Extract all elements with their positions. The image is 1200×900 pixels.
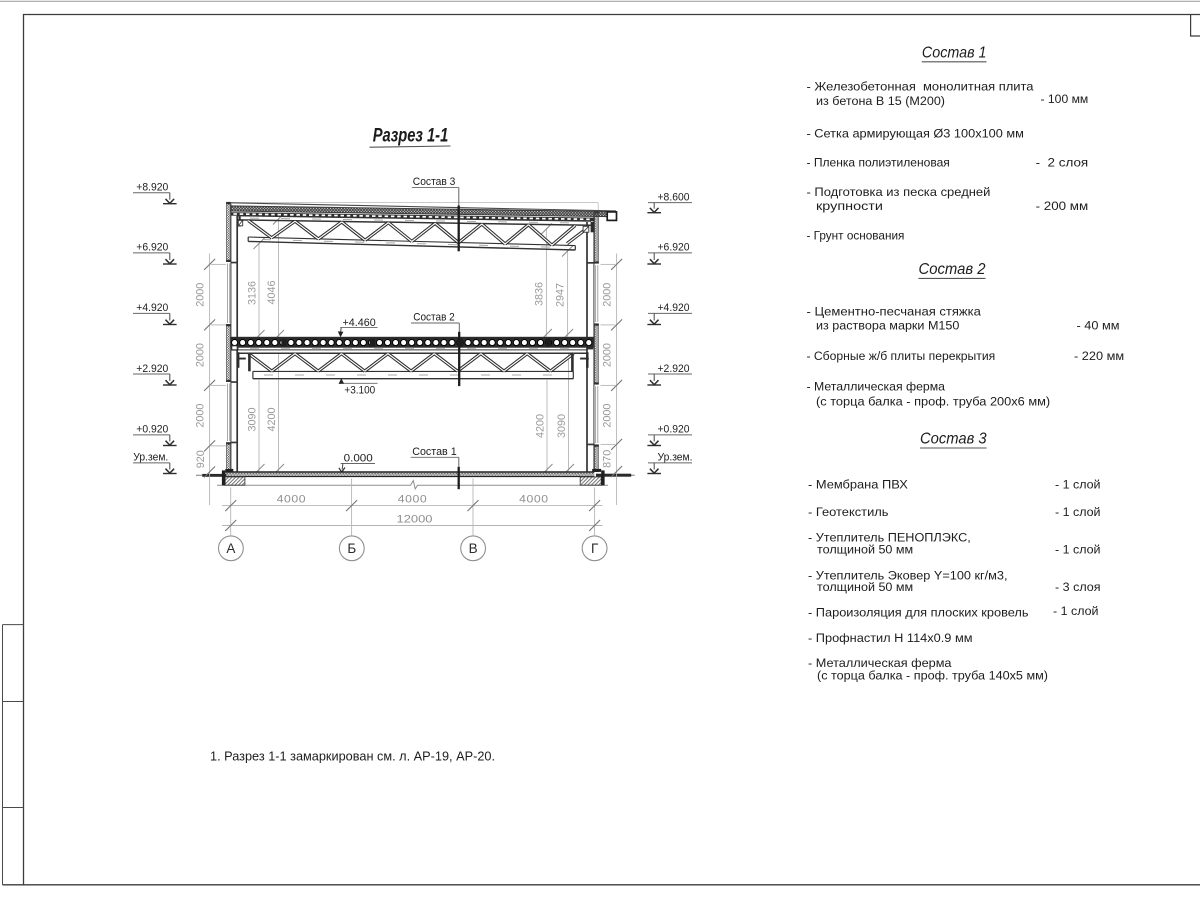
svg-text:2000: 2000 xyxy=(195,404,207,428)
svg-text:(с торца балка - проф. труба 1: (с торца балка - проф. труба 140х5 мм) xyxy=(817,668,1048,682)
svg-text:Состав 3: Состав 3 xyxy=(920,431,987,448)
svg-text:2000: 2000 xyxy=(195,283,207,307)
svg-text:+8.600: +8.600 xyxy=(658,191,690,203)
svg-text:- Подготовка из песка средней: - Подготовка из песка средней xyxy=(807,185,991,199)
svg-text:2000: 2000 xyxy=(601,343,613,367)
svg-text:А: А xyxy=(226,541,235,556)
svg-text:- 2 слоя: - 2 слоя xyxy=(1036,156,1089,170)
svg-text:3090: 3090 xyxy=(246,407,258,431)
svg-text:2947: 2947 xyxy=(555,283,567,307)
svg-text:4000: 4000 xyxy=(519,493,549,505)
svg-text:Состав 1: Состав 1 xyxy=(922,44,987,61)
svg-text:- 220 мм: - 220 мм xyxy=(1074,349,1124,363)
svg-text:- Сетка армирующая Ø3 100х100: - Сетка армирующая Ø3 100х100 мм xyxy=(807,127,1024,141)
svg-text:Состав 1: Состав 1 xyxy=(412,446,457,458)
svg-text:из бетона В 15 (М200): из бетона В 15 (М200) xyxy=(816,94,945,108)
svg-text:- 1 слой: - 1 слой xyxy=(1053,604,1099,618)
svg-text:- Мембрана ПВХ: - Мембрана ПВХ xyxy=(808,478,908,492)
svg-text:- 1 слой: - 1 слой xyxy=(1055,543,1101,557)
svg-text:+2.920: +2.920 xyxy=(658,363,690,375)
svg-text:+8.920: +8.920 xyxy=(136,182,168,194)
svg-text:- Пленка полиэтиленовая: - Пленка полиэтиленовая xyxy=(807,156,950,170)
svg-text:Состав 3: Состав 3 xyxy=(413,176,456,188)
svg-text:В: В xyxy=(469,541,478,556)
svg-text:+0.920: +0.920 xyxy=(136,424,168,436)
svg-text:- Железобетонная монолитная п: - Железобетонная монолитная плита xyxy=(807,79,1034,93)
svg-text:Б: Б xyxy=(347,541,356,556)
svg-text:- 200 мм: - 200 мм xyxy=(1036,199,1089,213)
svg-text:870: 870 xyxy=(602,450,614,468)
svg-text:- Металлическая ферма: - Металлическая ферма xyxy=(807,379,946,393)
svg-text:- Профнастил Н 114х0.9 мм: - Профнастил Н 114х0.9 мм xyxy=(808,631,973,645)
svg-text:- 100 мм: - 100 мм xyxy=(1041,92,1089,106)
svg-text:3136: 3136 xyxy=(246,281,258,305)
svg-text:Состав 2: Состав 2 xyxy=(919,261,986,278)
svg-text:(с торца балка - проф. труба 2: (с торца балка - проф. труба 200х6 мм) xyxy=(816,394,1050,408)
svg-text:2000: 2000 xyxy=(601,404,613,428)
svg-text:0.000: 0.000 xyxy=(344,453,373,465)
svg-text:- Геотекстиль: - Геотекстиль xyxy=(808,505,889,519)
svg-text:- 1 слой: - 1 слой xyxy=(1055,505,1101,519)
svg-text:Г: Г xyxy=(591,541,599,556)
svg-text:- 1 слой: - 1 слой xyxy=(1055,478,1101,492)
svg-text:толщиной 50 мм: толщиной 50 мм xyxy=(817,580,913,594)
svg-text:Состав 2: Состав 2 xyxy=(413,311,454,323)
svg-text:+3.100: +3.100 xyxy=(344,385,375,397)
svg-text:- Цементно-песчаная стяжка: - Цементно-песчаная стяжка xyxy=(807,305,982,319)
svg-text:4200: 4200 xyxy=(535,414,547,438)
svg-text:+4.920: +4.920 xyxy=(136,302,168,314)
svg-text:Ур.зем.: Ур.зем. xyxy=(658,452,693,464)
svg-text:920: 920 xyxy=(195,450,207,468)
svg-text:3090: 3090 xyxy=(556,414,568,438)
svg-text:+6.920: +6.920 xyxy=(658,242,690,254)
svg-text:4046: 4046 xyxy=(266,280,278,304)
svg-text:4000: 4000 xyxy=(277,493,307,505)
svg-text:+4.920: +4.920 xyxy=(658,302,690,314)
svg-text:2000: 2000 xyxy=(601,283,613,307)
svg-text:+0.920: +0.920 xyxy=(658,424,690,436)
svg-text:- 3 слоя: - 3 слоя xyxy=(1055,580,1101,594)
svg-text:12000: 12000 xyxy=(397,513,433,525)
svg-text:- 40 мм: - 40 мм xyxy=(1077,318,1120,332)
svg-text:2000: 2000 xyxy=(195,343,207,367)
svg-text:крупности: крупности xyxy=(816,199,883,213)
svg-text:Разрез 1-1: Разрез 1-1 xyxy=(373,125,449,147)
svg-text:1. Разрез 1-1 замаркирован см.: 1. Разрез 1-1 замаркирован см. л. АР-19,… xyxy=(210,750,495,764)
svg-text:- Пароизоляция для плоских кро: - Пароизоляция для плоских кровель xyxy=(808,605,1029,619)
svg-text:- Грунт основания: - Грунт основания xyxy=(807,229,905,243)
svg-text:- Сборные ж/б плиты перекрытия: - Сборные ж/б плиты перекрытия xyxy=(807,349,996,363)
svg-text:толщиной 50 мм: толщиной 50 мм xyxy=(817,543,913,557)
svg-text:+4.460: +4.460 xyxy=(343,317,376,329)
svg-text:+2.920: +2.920 xyxy=(136,363,168,375)
svg-text:+6.920: +6.920 xyxy=(136,242,168,254)
svg-text:3836: 3836 xyxy=(534,282,546,306)
svg-text:4000: 4000 xyxy=(398,493,428,505)
svg-text:4200: 4200 xyxy=(266,407,278,431)
svg-text:из раствора марки М150: из раствора марки М150 xyxy=(816,318,960,332)
svg-text:Ур.зем.: Ур.зем. xyxy=(133,452,168,464)
